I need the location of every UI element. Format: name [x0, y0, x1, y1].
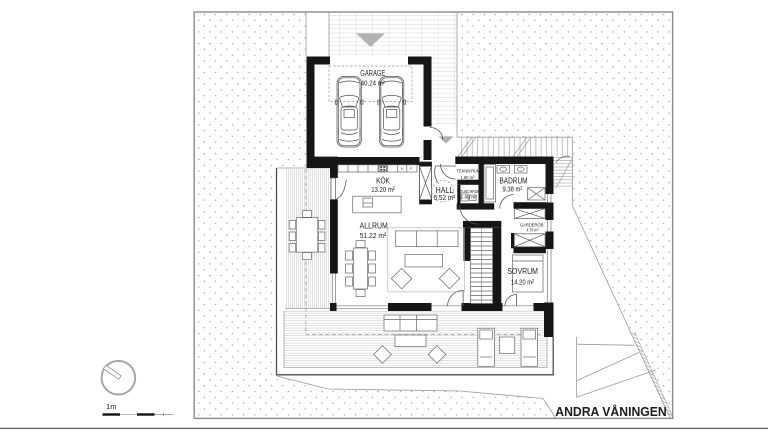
svg-text:ANDRA VÅNINGEN: ANDRA VÅNINGEN — [555, 404, 667, 419]
svg-text:13.20 m²: 13.20 m² — [371, 185, 395, 194]
svg-text:5.52 m²: 5.52 m² — [434, 193, 456, 202]
svg-text:F: F — [410, 167, 412, 171]
svg-text:ALLRUM: ALLRUM — [360, 220, 388, 230]
svg-text:SOVRUM: SOVRUM — [507, 266, 538, 276]
svg-text:14.20 m²: 14.20 m² — [511, 277, 534, 286]
svg-text:GARAGE: GARAGE — [360, 69, 385, 78]
svg-text:KÖK: KÖK — [376, 175, 390, 185]
svg-text:4.70 m²: 4.70 m² — [527, 227, 539, 232]
svg-text:TEKNIKRUM: TEKNIKRUM — [457, 169, 481, 175]
svg-text:40.24 m²: 40.24 m² — [361, 79, 385, 88]
svg-text:51.22 m²: 51.22 m² — [360, 231, 387, 240]
svg-text:9.38 m²: 9.38 m² — [503, 185, 523, 194]
svg-text:1m: 1m — [106, 402, 117, 411]
svg-text:1.60 m²: 1.60 m² — [460, 175, 474, 180]
svg-text:2.80 m²: 2.80 m² — [460, 194, 477, 199]
